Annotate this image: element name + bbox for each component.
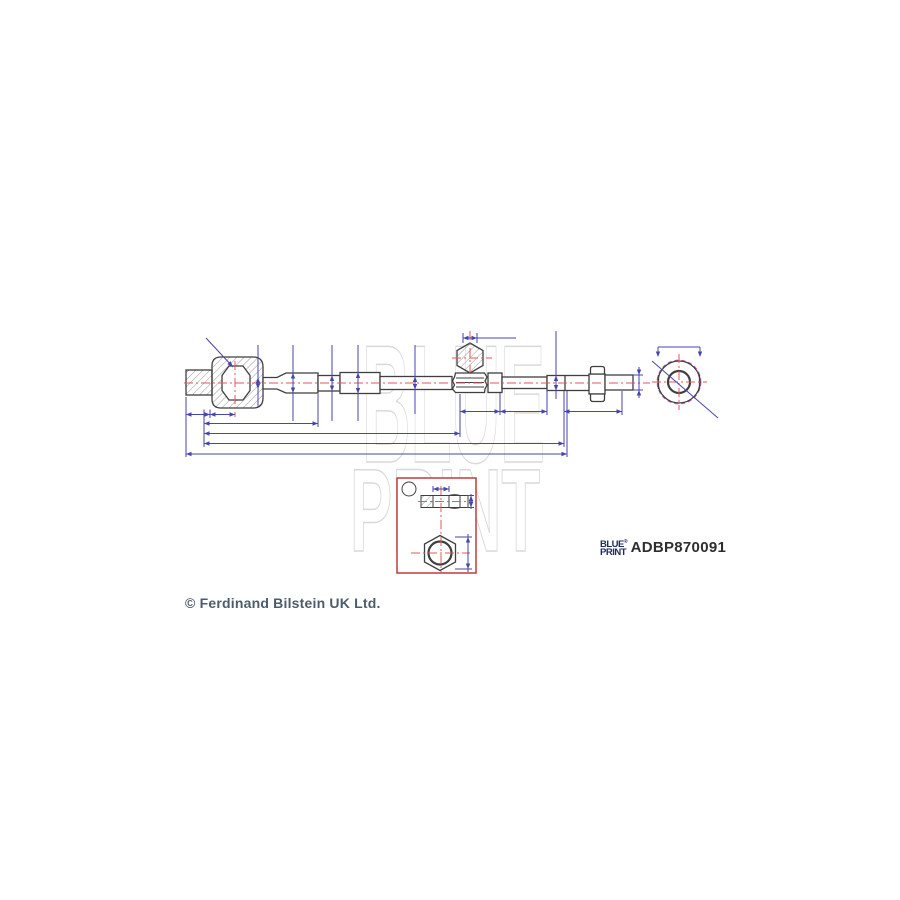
- registered-mark: ®: [624, 539, 628, 545]
- technical-drawing: BLUE PRINT: [0, 0, 900, 900]
- lock-nut-side: [589, 367, 605, 402]
- product-image-tie-rod-drawing: BLUE PRINT: [0, 0, 900, 900]
- blueprint-logo: BLUE® PRINT: [600, 539, 628, 556]
- copyright-text: © Ferdinand Bilstein UK Ltd.: [185, 595, 381, 611]
- detail-view-box: [397, 478, 476, 573]
- logo-line2: PRINT: [600, 549, 628, 557]
- part-number: ADBP870091: [631, 539, 727, 556]
- brand-row: BLUE® PRINT ADBP870091: [600, 539, 726, 556]
- detail-frame: [397, 478, 476, 573]
